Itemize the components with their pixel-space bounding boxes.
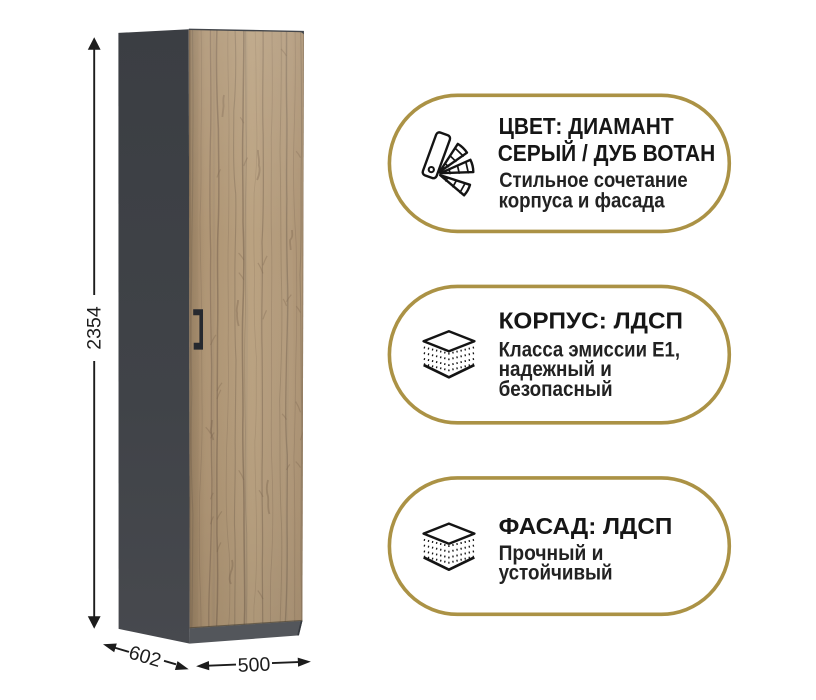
svg-text:ФАСАД: ЛДСП: ФАСАД: ЛДСП xyxy=(499,513,673,539)
svg-text:корпуса и фасада: корпуса и фасада xyxy=(499,189,665,212)
svg-text:СЕРЫЙ / ДУБ ВОТАН: СЕРЫЙ / ДУБ ВОТАН xyxy=(498,140,716,166)
svg-text:500: 500 xyxy=(237,653,271,676)
svg-text:2354: 2354 xyxy=(83,306,105,350)
svg-text:КОРПУС: ЛДСП: КОРПУС: ЛДСП xyxy=(499,308,683,334)
svg-text:безопасный: безопасный xyxy=(499,378,613,401)
svg-text:602: 602 xyxy=(126,642,163,672)
svg-text:устойчивый: устойчивый xyxy=(499,562,613,585)
svg-text:ЦВЕТ: ДИАМАНТ: ЦВЕТ: ДИАМАНТ xyxy=(499,113,674,139)
